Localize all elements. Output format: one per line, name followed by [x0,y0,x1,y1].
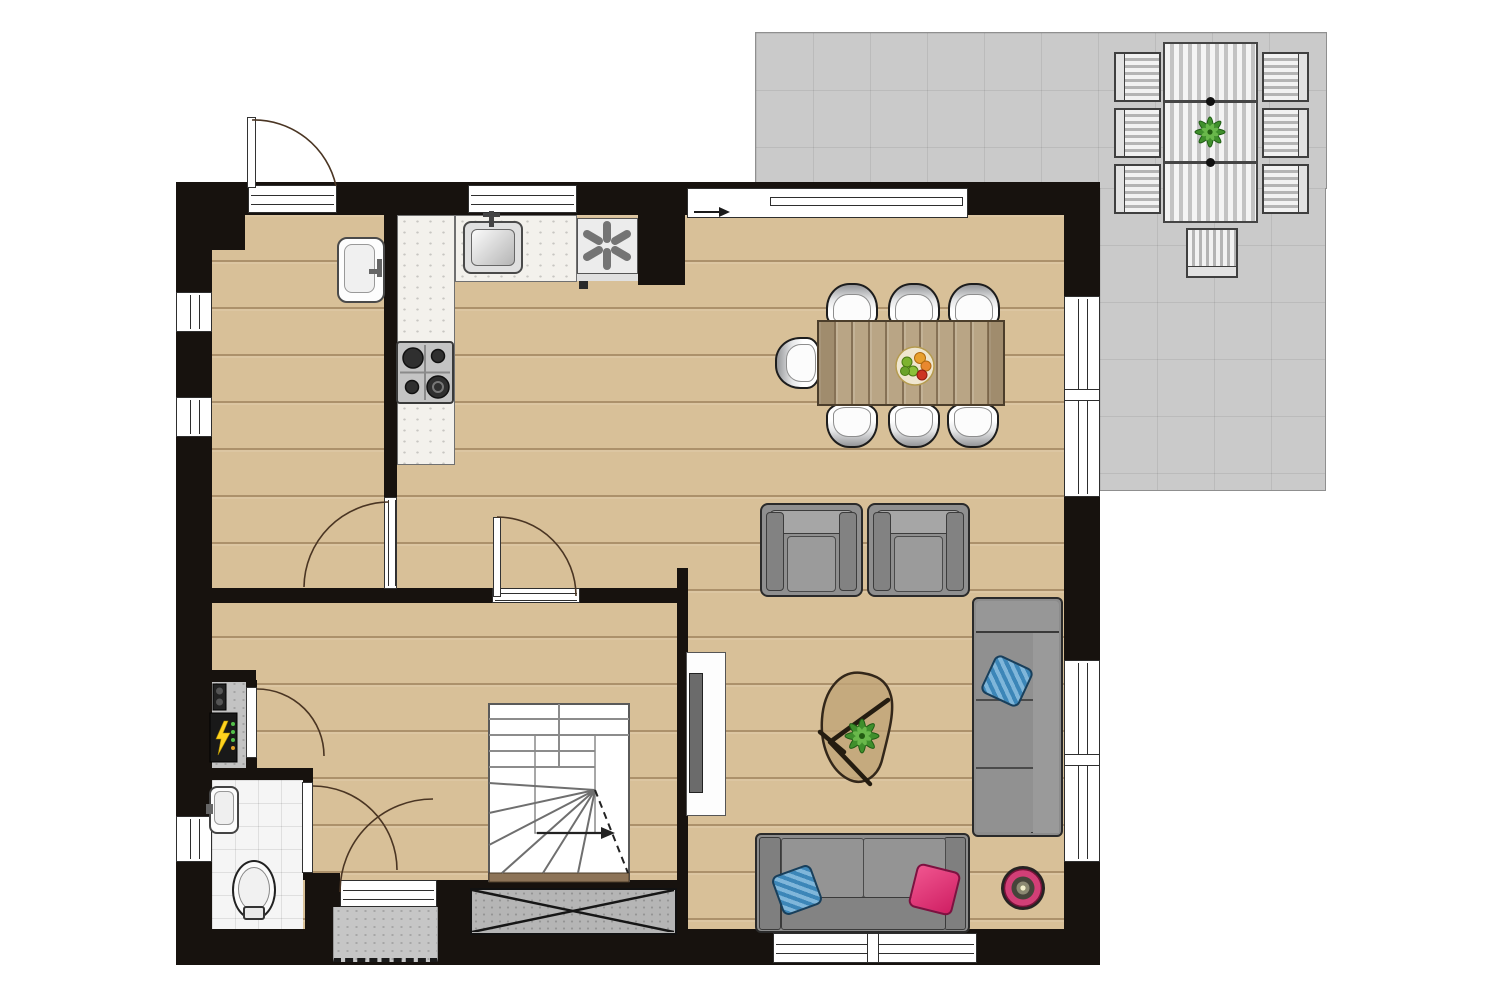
door-leaf-utility [384,497,397,589]
terrace-bench [1186,228,1238,278]
window-mullion [1064,389,1100,401]
window-utility-2 [176,397,212,437]
dining-chair [947,402,999,448]
side-table-round [999,864,1047,912]
armchair [867,503,970,597]
dining-chair [826,402,878,448]
porch-step [333,907,438,962]
window-utility-1 [176,292,212,332]
sliding-door-panel [770,197,963,206]
table-end-board [988,322,1003,404]
window-glass [190,819,200,859]
sofa-top-section [976,601,1059,633]
wc-toilet-base [243,906,265,920]
floor-plan-canvas [0,0,1500,999]
door-glass [343,890,434,900]
hatch-cross-icon [472,890,674,932]
chair-seat [786,344,816,382]
window-kitchen [468,185,577,213]
ventilation-unit-base [577,273,638,281]
chair-seat [833,407,871,437]
armchair-armrest [766,512,784,591]
chair-rail [1298,166,1307,212]
chair-rail [1116,54,1125,100]
wall-chimney-column [638,215,685,285]
window-glass [190,295,200,329]
chair-rail [1116,110,1125,156]
table-leaf [1163,162,1258,223]
kitchen-counter-vertical [397,215,455,465]
window-mullion [1064,754,1100,766]
corner-sofa [972,597,1063,837]
armchair [760,503,863,597]
armchair-armrest [873,512,891,591]
table-leaf [1163,42,1258,102]
ventilation-asterisk-icon [578,219,636,272]
window-glass [471,195,574,205]
wall-toilet-top [212,768,313,780]
coffee-table [812,664,902,789]
window-glass [190,400,200,434]
terrace-chair [1262,164,1309,214]
kitchen-door-threshold [492,588,580,603]
terrace-chair [1262,52,1309,102]
gas-hob-burners [398,343,452,402]
armchair-armrest [946,512,964,591]
wc-toilet-bowl [238,867,270,911]
door-glass [495,593,577,601]
chair-rail [1298,110,1307,156]
armchair-seat [787,536,836,592]
coffee-table-plant-icon [845,719,879,753]
fruit-bowl [893,344,937,388]
front-door-threshold [340,880,437,907]
door-leaf-back-door [247,117,256,188]
terrace-chair [1114,164,1161,214]
window-toilet [176,816,212,862]
ventilation-unit-foot [579,281,588,289]
chair-rail [1298,54,1307,100]
ventilation-unit [577,218,638,274]
sofa-back-cushions [1031,633,1059,833]
armchair-seat [894,536,943,592]
wall-hall-top-b [580,588,677,603]
kitchen-faucet-icon [483,213,500,217]
chair-seat [895,407,933,437]
tv-screen [689,673,703,793]
door-glass [388,500,396,586]
terrace-plant-icon [1188,110,1232,154]
door-leaf-meter-cupboard [246,687,257,758]
table-end-board [819,322,834,404]
door-glass [251,195,334,205]
door-leaf-toilet [302,782,313,873]
basin-faucet-icon [206,804,213,814]
dining-chair-head [775,337,821,389]
hand-basin-bowl [214,791,234,825]
sliding-door-arrow [692,205,732,219]
winder-staircase [488,703,630,885]
window-mullion [867,933,879,963]
table-joint [1206,158,1215,167]
armchair-armrest [839,512,857,591]
kitchen-sink-basin [471,229,515,266]
bench-rail [1188,266,1236,276]
crawl-space-hatch [470,888,677,935]
wall-hall-top-a [212,588,492,603]
sofa-seat-cushion [976,701,1033,769]
table-joint [1206,97,1215,106]
door-leaf-kitchen [493,517,501,597]
sofa-seat-cushion [976,769,1033,832]
back-door-arc [252,120,336,186]
chair-rail [1116,166,1125,212]
chair-seat [954,407,992,437]
terrace-chair [1114,108,1161,158]
terrace-chair [1114,52,1161,102]
dining-chair [888,402,940,448]
utility-faucet-icon [377,259,382,277]
terrace-chair [1262,108,1309,158]
electrical-panel [208,682,242,766]
wall-corner-block [212,215,245,250]
gas-hob [396,341,454,404]
back-door-threshold [248,185,337,213]
